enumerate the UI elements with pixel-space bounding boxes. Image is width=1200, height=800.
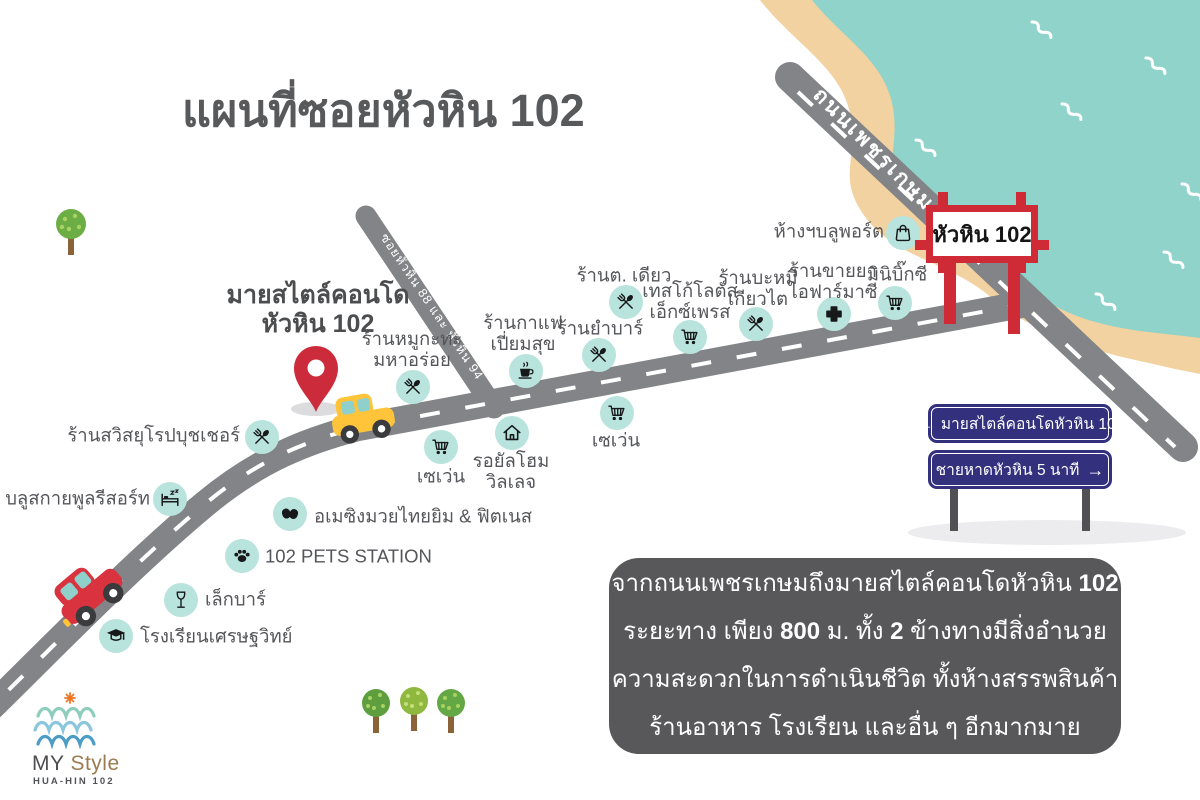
- arrow-left-icon: ←: [916, 415, 934, 433]
- gate-sign-label: หัวหิน 102: [932, 217, 1031, 252]
- landmark-label-amazing-muaythai-gym: อเมซิงมวยไทยยิม & ฟิตเนส: [314, 507, 532, 528]
- landmark-label-mini-bigc: มินิบิ๊กซี: [867, 265, 927, 286]
- gradcap-icon: [99, 619, 133, 653]
- arrow-right-icon: →: [1086, 461, 1104, 479]
- cart-icon: [600, 396, 634, 430]
- tree: [362, 689, 390, 733]
- landmark-label-i-pharmacy: ร้านขายยาไอฟาร์มาซี: [789, 261, 878, 303]
- landmark-label-lek-bar: เล็กบาร์: [205, 590, 266, 611]
- cutlery-icon: [739, 307, 773, 341]
- tree: [56, 209, 86, 255]
- page-title: แผนที่ซอยหัวหิน 102: [182, 74, 585, 146]
- coffee-icon: [509, 354, 543, 388]
- landmark-label-bluport-mall: ห้างฯบลูพอร์ต: [774, 222, 884, 243]
- landmark-label-swiss-euro-butcher: ร้านสวิสยุโรปบุชเชอร์: [67, 426, 240, 447]
- info-box: จากถนนเพชรเกษมถึงมายสไตล์คอนโดหัวหิน 102…: [609, 558, 1121, 754]
- landmark-label-seven-eleven-west: เซเว่น: [417, 467, 465, 488]
- logo-waves-icon: [30, 692, 140, 752]
- cutlery-icon: [609, 285, 643, 319]
- direction-sign-beach: ชายหาดหัวหิน 5 นาที →: [928, 450, 1112, 489]
- landmark-label-yam-bar: ร้านยำบาร์: [557, 319, 643, 340]
- direction-sign-condo: ← มายสไตล์คอนโดหัวหิน 102: [928, 404, 1112, 443]
- info-box-line-2: ระยะทาง เพียง 800 ม. ทั้ง 2 ข้างทางมีสิ่…: [609, 608, 1121, 656]
- landmark-label-coffee-piamsuk: ร้านกาแฟเปี่ยมสุข: [483, 313, 563, 355]
- landmark-label-102-pets-station: 102 PETS STATION: [265, 547, 432, 568]
- cutlery-icon: [396, 370, 430, 404]
- huahin-102-gate-sign: หัวหิน 102: [926, 205, 1038, 263]
- house-icon: [495, 416, 529, 450]
- wine-icon: [164, 583, 198, 617]
- landmark-label-bluesky-pool-resort: บลูสกายพูลรีสอร์ท: [5, 489, 150, 510]
- direction-sign-post: [1082, 487, 1090, 531]
- direction-sign-beach-label: ชายหาดหัวหิน 5 นาที: [936, 457, 1080, 482]
- direction-sign-post: [950, 487, 958, 531]
- landmark-label-seven-eleven-east: เซเว่น: [592, 431, 640, 452]
- info-box-line-4: ร้านอาหาร โรงเรียน และอื่น ๆ อีกมากมาย: [609, 704, 1121, 752]
- logo-brand-text: MY Style: [32, 752, 120, 776]
- cart-icon: [878, 286, 912, 320]
- direction-sign-condo-label: มายสไตล์คอนโดหัวหิน 102: [941, 411, 1124, 436]
- tree: [437, 689, 465, 733]
- cart-icon: [673, 320, 707, 354]
- map-infographic: ถนนเพชรเกษม ซอยหัวหิน 88 และ หัวหิน 94: [0, 0, 1200, 800]
- location-pin-icon: [294, 346, 338, 412]
- cutlery-icon: [582, 338, 616, 372]
- cutlery-icon: [245, 420, 279, 454]
- tree: [400, 687, 428, 731]
- landmark-label-noodle-kiao-tai: ร้านบะหมีเกียวไต: [718, 268, 797, 310]
- brand-logo: MY Style HUA-HIN 102: [30, 692, 160, 757]
- logo-subtitle: HUA-HIN 102: [33, 776, 115, 787]
- landmark-label-royal-home-village: รอยัลโฮมวิลเลจ: [473, 451, 550, 493]
- landmark-label-mookata-maha-aroi: ร้านหมูกะทะมหาอร่อย: [362, 329, 463, 371]
- landmark-label-setthawit-school: โรงเรียนเศรษฐวิทย์: [140, 627, 292, 648]
- cart-icon: [424, 430, 458, 464]
- info-box-line-3: ความสะดวกในการดำเนินชีวิต ทั้งห้างสรรพสิ…: [609, 656, 1121, 704]
- info-box-line-1: จากถนนเพชรเกษมถึงมายสไตล์คอนโดหัวหิน 102: [609, 560, 1121, 608]
- paw-icon: [225, 539, 259, 573]
- boxing-icon: [273, 497, 307, 531]
- condo-label-line1: มายสไตล์คอนโด: [226, 281, 409, 310]
- bed-icon: [153, 482, 187, 516]
